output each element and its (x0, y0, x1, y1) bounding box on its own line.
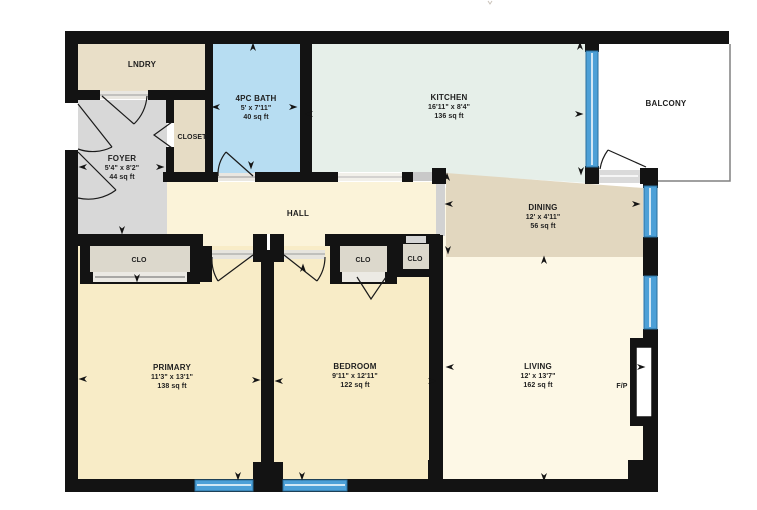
room-area-foyer: 44 sq ft (109, 174, 135, 181)
wall-bath-left (205, 44, 213, 182)
room-label-clo-primary: CLO (131, 257, 147, 264)
room-label-kitchen: KITCHEN (431, 93, 468, 102)
room-label-clo-bedroom-left: CLO (355, 257, 371, 264)
fireplace-insert (636, 347, 652, 417)
wall-bath-bottom-a (163, 172, 218, 182)
floor-plan-page: LNDRY 4PC BATH 5' x 7'11" 40 sq ft KITCH… (0, 0, 757, 510)
clo-bedroom-right-opening (406, 236, 426, 243)
room-label-closet: CLOSET (178, 134, 208, 141)
wall-left-upper (65, 31, 78, 103)
wall-divider-post (253, 462, 283, 492)
room-dims-bedroom: 9'11" x 12'11" (332, 373, 378, 380)
half-wall (436, 182, 445, 236)
room-dims-kitchen: 16'11" x 8'4" (428, 104, 470, 111)
room-label-primary: PRIMARY (153, 363, 191, 372)
window-kitchen-balcony (586, 51, 598, 167)
low-wall-segment (413, 172, 432, 181)
wall-top (65, 31, 729, 44)
room-area-living: 162 sq ft (523, 382, 553, 389)
room-area-kitchen: 136 sq ft (434, 113, 464, 120)
wall-bath-bottom-b (255, 172, 312, 182)
room-fill-balcony (598, 44, 730, 181)
window-dining (644, 186, 657, 237)
wall-right-segment (643, 237, 658, 276)
room-fill-hall (167, 182, 443, 234)
wall-clo-jamb (198, 246, 212, 282)
window-cap (585, 166, 599, 184)
room-area-dining: 56 sq ft (530, 223, 556, 230)
wall-balcony-door-post (640, 168, 658, 184)
window-primary (195, 480, 253, 491)
room-label-fireplace: F/P (616, 383, 627, 390)
room-label-bedroom: BEDROOM (333, 362, 376, 371)
window-bedroom (283, 480, 347, 491)
wall-kitchen-bottom-a (310, 172, 338, 182)
wall-primary-bedroom-divider (261, 250, 274, 492)
room-dims-primary: 11'3" x 13'1" (151, 374, 193, 381)
wall-left-lower (65, 150, 78, 492)
room-label-living: LIVING (524, 362, 552, 371)
wall-kitchen-post (432, 168, 446, 184)
room-label-foyer: FOYER (108, 154, 137, 163)
room-label-bath: 4PC BATH (235, 94, 276, 103)
wall-lndry-bottom-b (148, 90, 207, 100)
wall-bedroom-post (428, 460, 443, 492)
room-area-bath: 40 sq ft (243, 114, 269, 121)
room-dims-foyer: 5'4" x 8'2" (105, 165, 139, 172)
floor-plan-drawing: LNDRY 4PC BATH 5' x 7'11" 40 sq ft KITCH… (0, 0, 757, 510)
room-dims-dining: 12' x 4'11" (526, 214, 561, 221)
wall-kitchen-bottom-b (402, 172, 413, 182)
room-area-primary: 138 sq ft (157, 383, 187, 390)
room-label-lndry: LNDRY (128, 60, 157, 69)
wall-corner-post (628, 460, 658, 492)
wall-foyer-bottom (78, 234, 203, 246)
room-label-dining: DINING (528, 203, 557, 212)
clo-bedroom-left-opening (342, 272, 385, 282)
room-label-clo-bedroom-right: CLO (407, 256, 423, 263)
wall-right-segment (643, 329, 658, 339)
wall-closet-left-a (166, 97, 174, 123)
room-area-bedroom: 122 sq ft (340, 382, 370, 389)
window-living (644, 276, 657, 329)
room-label-hall: HALL (287, 209, 309, 218)
wall-lndry-bottom-a (78, 90, 100, 100)
room-label-balcony: BALCONY (646, 99, 687, 108)
wall-bottom (65, 479, 658, 492)
room-dims-bath: 5' x 7'11" (241, 105, 272, 112)
room-dims-living: 12' x 13'7" (521, 373, 556, 380)
